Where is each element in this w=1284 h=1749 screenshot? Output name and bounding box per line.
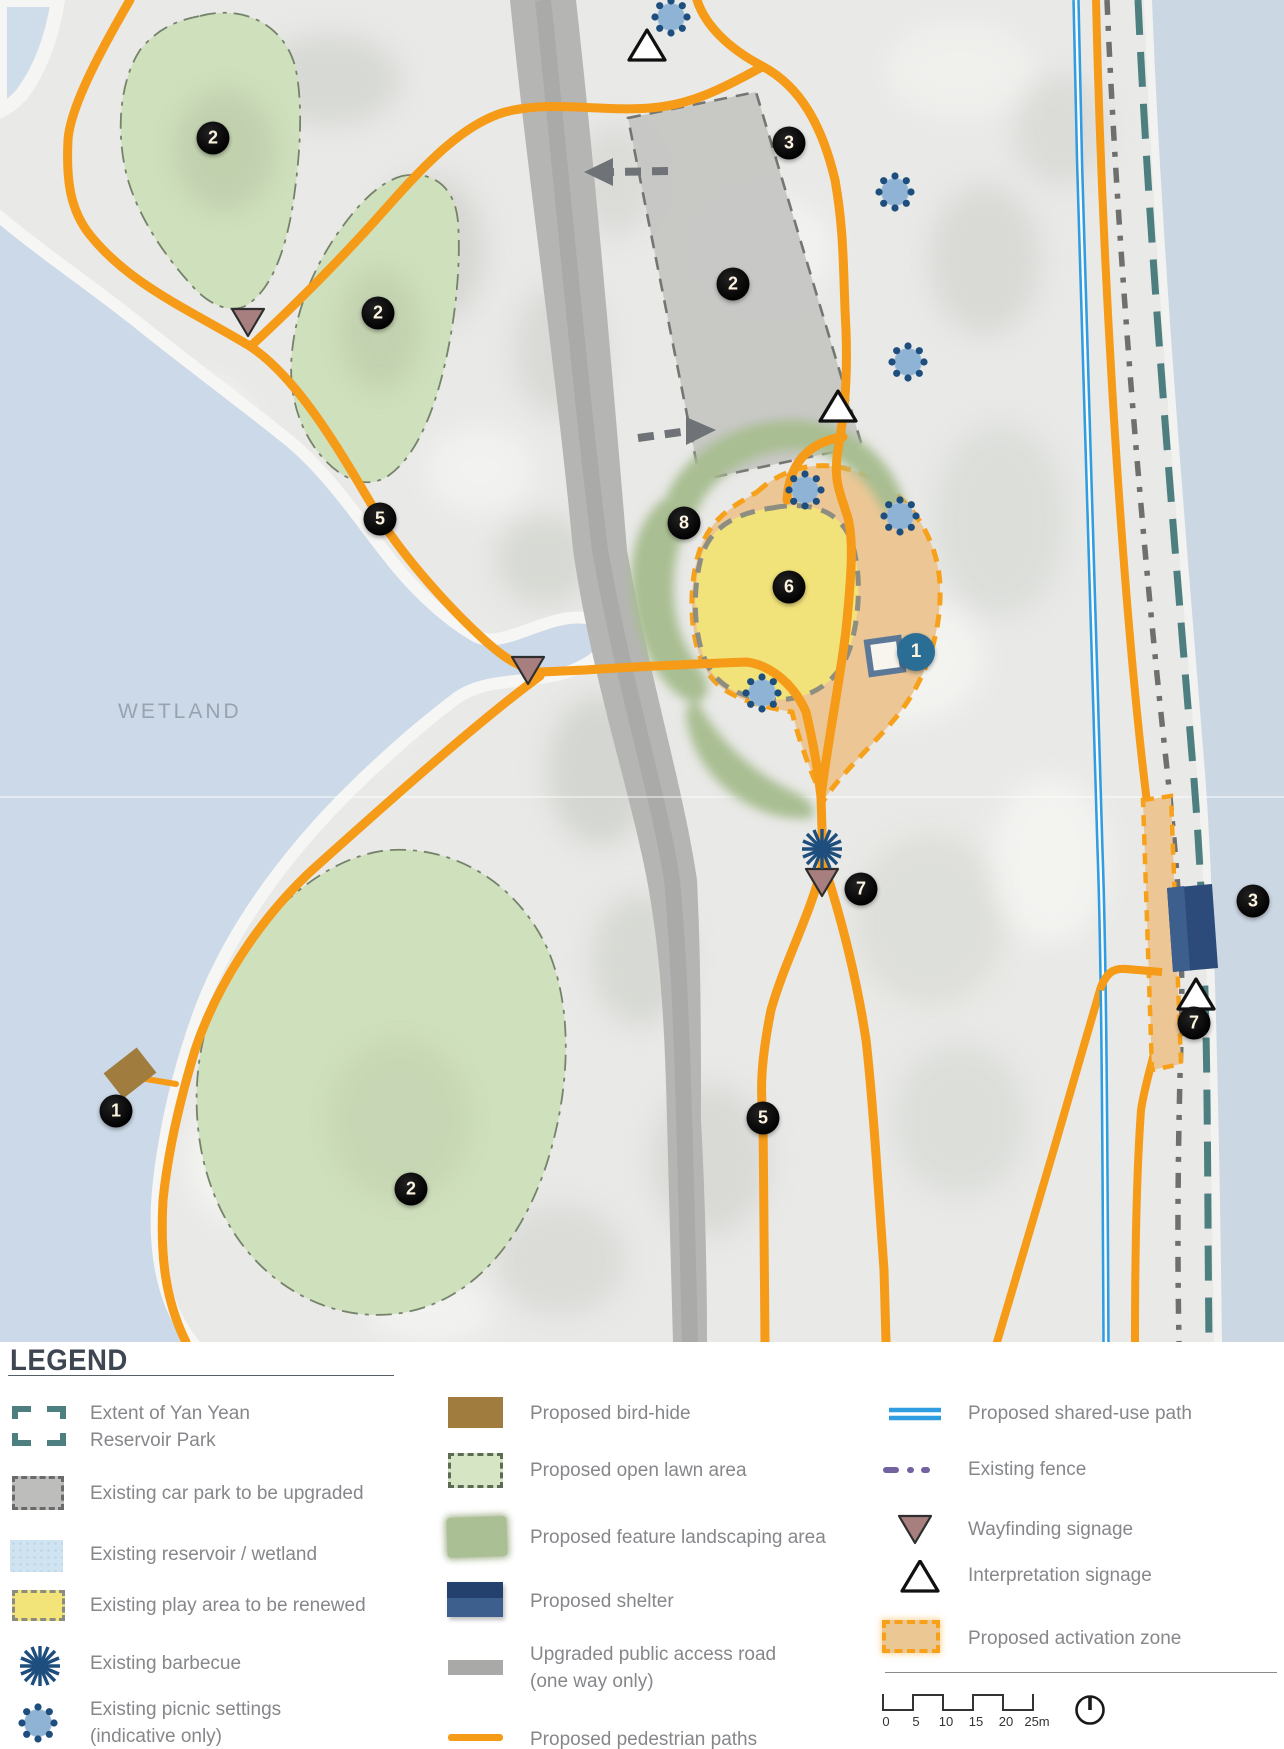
- play-area-swatch: [12, 1590, 65, 1621]
- wayfinding-signage-icon: [896, 1514, 934, 1552]
- map-marker-2: 2: [197, 122, 230, 155]
- legend-label: Proposed open lawn area: [530, 1457, 747, 1484]
- map-marker-3: 3: [773, 127, 806, 160]
- legend-label: Proposed activation zone: [968, 1625, 1181, 1652]
- legend-label: (indicative only): [90, 1723, 281, 1749]
- fence-swatch: [883, 1463, 939, 1481]
- legend-label: Proposed bird-hide: [530, 1400, 691, 1427]
- map-marker-2: 2: [362, 297, 395, 330]
- legend-title: LEGEND: [10, 1344, 128, 1378]
- legend-label: Interpretation signage: [968, 1562, 1152, 1589]
- proposed-shelter-building: [1167, 884, 1218, 972]
- access-road-swatch: [448, 1660, 503, 1675]
- scale-label: 25m: [1024, 1714, 1049, 1729]
- bird-hide-swatch: [448, 1397, 503, 1428]
- map-marker-1: 1: [100, 1095, 133, 1128]
- picnic-settings-icon: [880, 496, 919, 535]
- car-park-swatch: [12, 1476, 64, 1510]
- map-marker-8: 8: [668, 507, 701, 540]
- legend-separator: [885, 1672, 1277, 1673]
- map-marker-7: 7: [845, 873, 878, 906]
- map-marker-5: 5: [747, 1102, 780, 1135]
- scale-label: 20: [999, 1714, 1013, 1729]
- barbecue-icon: [802, 829, 842, 869]
- legend-label: Wayfinding signage: [968, 1516, 1133, 1543]
- map-marker-7: 7: [1178, 1007, 1211, 1040]
- shared-use-path-swatch: [888, 1406, 942, 1427]
- pedestrian-path-swatch: [448, 1734, 503, 1741]
- open-lawn-swatch: [448, 1453, 503, 1488]
- park-map: WETLAND 22325861715237: [0, 0, 1284, 1342]
- picnic-settings-icon: [17, 1702, 59, 1749]
- shelter-swatch: [447, 1582, 503, 1617]
- picnic-settings-icon: [785, 470, 824, 509]
- legend-label: Existing car park to be upgraded: [90, 1480, 364, 1507]
- scale-label: 5: [912, 1714, 919, 1729]
- legend-label: Existing reservoir / wetland: [90, 1541, 317, 1568]
- legend-label: Existing picnic settings: [90, 1696, 281, 1723]
- picnic-settings-icon: [888, 342, 927, 381]
- legend-label: Proposed shared-use path: [968, 1400, 1192, 1427]
- wetland-label: WETLAND: [118, 700, 242, 724]
- legend-title-rule: [8, 1375, 394, 1376]
- legend-label: Upgraded public access road: [530, 1641, 776, 1668]
- picnic-settings-icon: [742, 673, 781, 712]
- map-marker-2: 2: [717, 268, 750, 301]
- map-marker-3: 3: [1237, 885, 1270, 918]
- legend-label: Proposed feature landscaping area: [530, 1524, 826, 1551]
- map-marker-1: 1: [897, 633, 935, 671]
- legend-label: Existing barbecue: [90, 1650, 241, 1677]
- activation-zone-swatch: [882, 1620, 940, 1653]
- map-marker-6: 6: [773, 571, 806, 604]
- legend-label: (one way only): [530, 1668, 776, 1695]
- legend-label: Existing play area to be renewed: [90, 1592, 366, 1619]
- legend-label: Extent of Yan Yean: [90, 1400, 250, 1427]
- legend-label: Reservoir Park: [90, 1427, 250, 1454]
- reservoir-swatch: [10, 1540, 63, 1572]
- scale-bar: [880, 1692, 1040, 1721]
- legend-label: Proposed shelter: [530, 1588, 674, 1615]
- scale-label: 15: [969, 1714, 983, 1729]
- masterplan-page: WETLAND 22325861715237 LEGEND Extent of …: [0, 0, 1284, 1749]
- north-indicator-icon: [1073, 1692, 1107, 1731]
- scale-label: 0: [882, 1714, 889, 1729]
- map-marker-5: 5: [364, 503, 397, 536]
- feature-landscaping-swatch: [446, 1516, 507, 1558]
- legend-panel: LEGEND Extent of Yan Yean Reservoir Park…: [0, 1342, 1284, 1749]
- barbecue-icon: [18, 1644, 62, 1693]
- legend-label: Existing fence: [968, 1456, 1086, 1483]
- extent-of-park-icon: [12, 1406, 66, 1451]
- picnic-settings-icon: [875, 172, 914, 211]
- legend-label: Proposed pedestrian paths: [530, 1726, 757, 1749]
- scale-label: 10: [939, 1714, 953, 1729]
- interpretation-signage-icon: [900, 1560, 940, 1599]
- map-marker-2: 2: [395, 1173, 428, 1206]
